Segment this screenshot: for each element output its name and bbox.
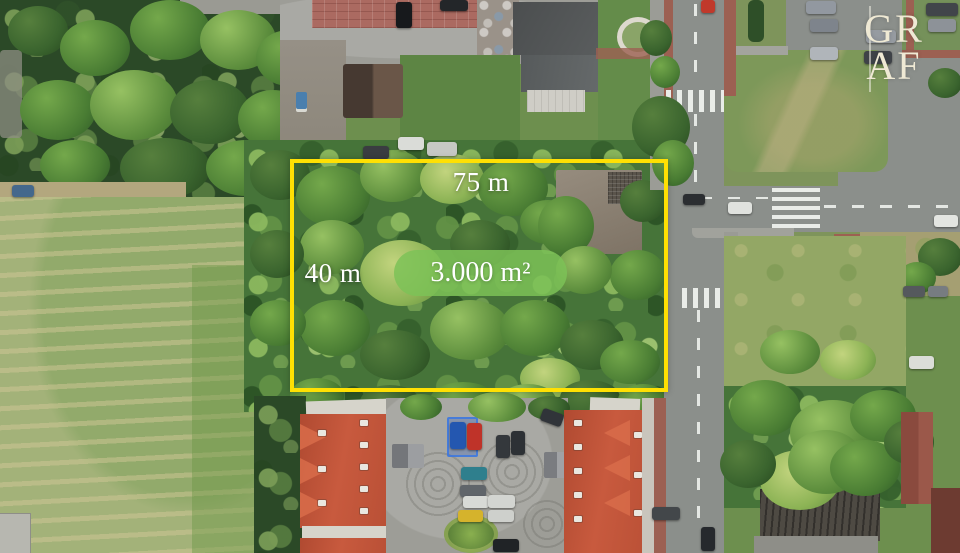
car [810,19,838,32]
rocky-patch [0,50,22,138]
car [363,146,389,159]
bush [760,330,820,374]
roof-hip [604,420,630,446]
barn-roof [343,64,403,118]
tree [20,80,96,140]
car [701,0,715,13]
car [488,510,514,522]
car [440,0,468,11]
crosswalk [772,188,820,230]
skylight [360,442,368,448]
car [511,431,525,455]
building-wall [302,526,392,538]
car [488,495,515,508]
skylight [634,510,642,516]
car [652,507,680,520]
bush [400,394,442,420]
tree [60,20,130,76]
driveway [754,536,878,553]
skylight [574,492,582,498]
skylight [574,444,582,450]
car [496,435,510,458]
car [810,47,838,60]
aerial-photo: 75 m 40 m 3.000 m² GR AF [0,0,960,553]
car [806,1,836,14]
dark-red-building [931,488,960,553]
tree [8,6,68,56]
car [467,423,482,450]
car [450,422,466,449]
car [396,2,412,28]
car [934,215,958,227]
road-marking [700,197,772,199]
car [493,539,519,552]
car [12,185,34,197]
car [728,202,752,214]
house-roof-lower [521,55,603,92]
skylight [634,472,642,478]
car [427,142,457,156]
logo-line-1: GR [852,10,936,47]
road-marking [694,114,697,184]
tree [90,70,178,140]
car [903,286,925,297]
terrace [527,90,585,112]
plot-depth-label: 40 m [294,258,372,289]
blue-barrels [296,92,307,109]
tree [720,440,776,488]
crosswalk [682,288,724,308]
bush [820,340,876,380]
tree [650,56,680,88]
roof-hip [604,455,630,481]
bike-lane [724,0,736,96]
road-marking [697,310,700,530]
house-roof-upper [513,2,601,55]
skylight [318,500,326,506]
logo-line-2: AF [852,47,936,84]
tree-strip [254,396,306,553]
agency-logo: GR AF [852,10,936,84]
skylight [360,486,368,492]
skylight [318,430,326,436]
skylight [574,420,582,426]
skylight [634,432,642,438]
skylight [574,468,582,474]
roof-hip [300,424,326,450]
road-marking [694,4,697,86]
plot-width-label: 75 m [436,167,526,198]
car [463,496,489,508]
skylight [360,464,368,470]
car [928,286,948,297]
skylight [360,420,368,426]
pavilion-roof [392,444,424,468]
car [458,510,483,522]
tree [130,0,210,60]
bush [468,392,526,422]
hedge [748,0,764,42]
red-roof-building [901,412,933,504]
car [683,194,705,205]
road-marking [824,205,956,208]
building-wall-strip [642,398,654,553]
skylight [360,508,368,514]
car [909,356,934,369]
tree [640,20,672,56]
apartment-roof-left-lower [300,538,392,553]
red-sidewalk [654,398,666,553]
skylight [574,516,582,522]
car [461,467,487,480]
skylight [318,466,326,472]
overgrown-plot [724,236,906,406]
area-badge: 3.000 m² [394,250,567,296]
building-roof-corner [0,513,31,553]
car [701,527,715,551]
roof-hip [604,490,630,516]
car [398,137,424,150]
